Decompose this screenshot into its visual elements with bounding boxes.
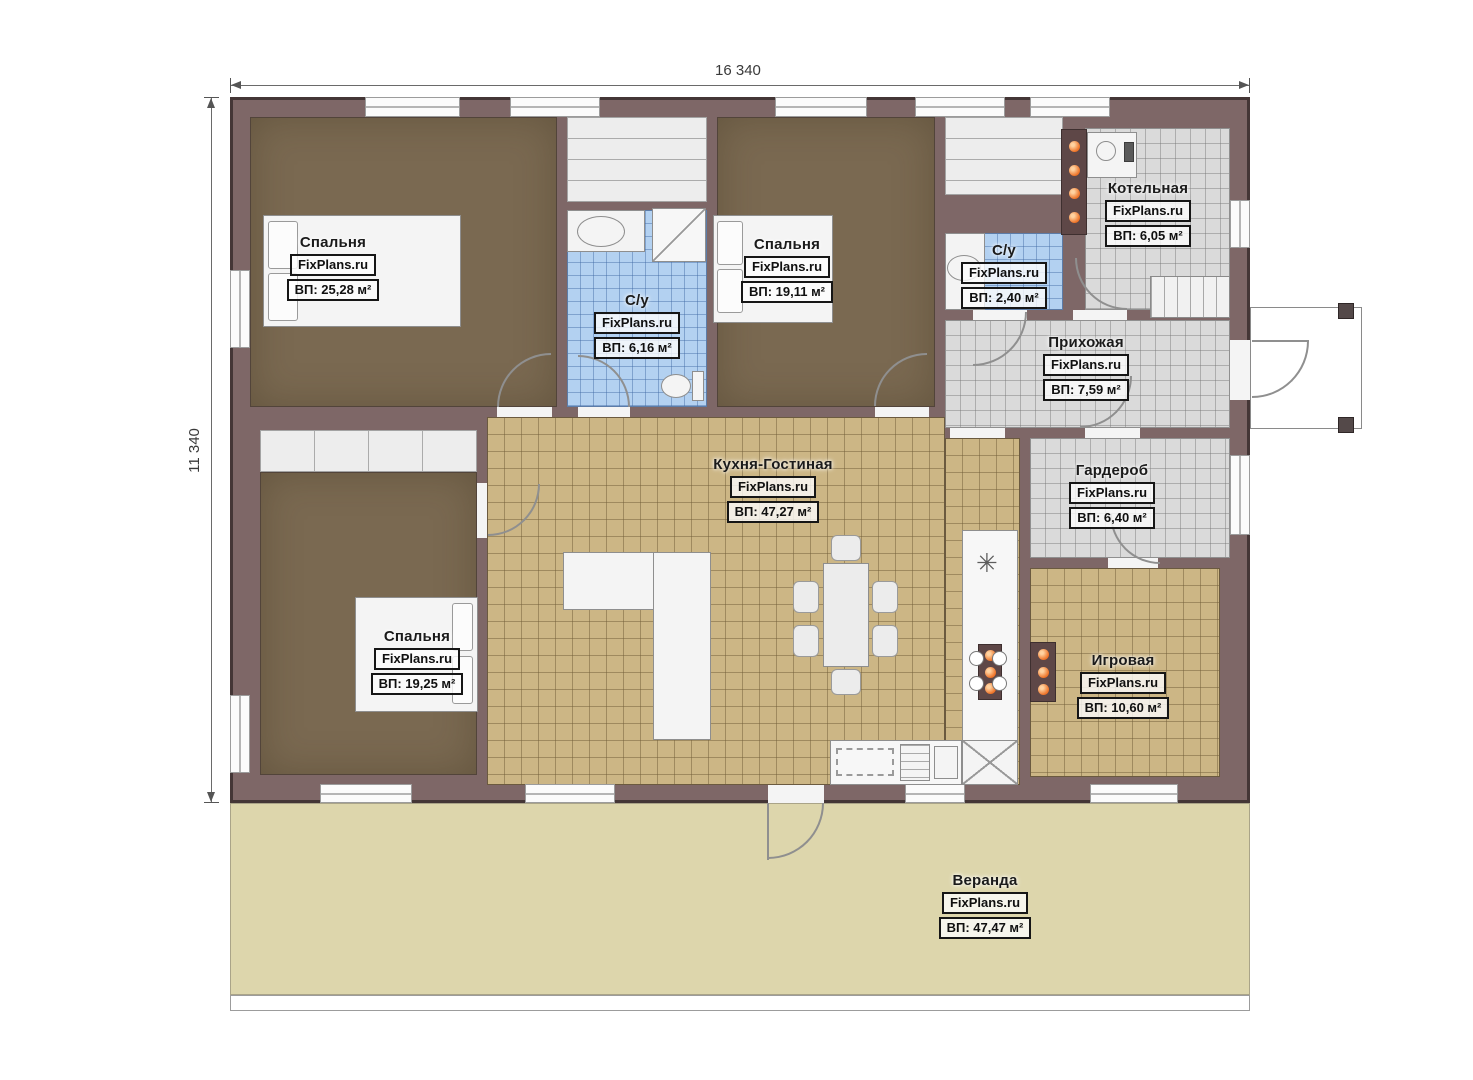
closet-shelves: [260, 430, 477, 472]
vent-icon: ✳: [976, 548, 998, 579]
arrow-down-icon: [207, 792, 215, 802]
door-threshold: [950, 428, 1005, 438]
window: [1030, 97, 1110, 117]
window: [525, 784, 615, 803]
veranda-step: [230, 995, 1250, 1011]
dimension-endbar: [1249, 78, 1250, 93]
radiator: [1030, 642, 1056, 702]
entry-stairs: [1150, 276, 1230, 318]
toilet-tank: [692, 371, 704, 401]
arrow-right-icon: [1239, 81, 1249, 89]
dimension-label-width: 16 340: [715, 62, 761, 79]
window: [320, 784, 412, 803]
chair: [872, 581, 898, 613]
entrance-door-opening: [1230, 340, 1250, 400]
washer-drum-icon: [1096, 141, 1116, 161]
chair: [793, 625, 819, 657]
door-threshold: [1073, 310, 1127, 320]
closet-shelves: [945, 117, 1063, 195]
toilet-icon: [661, 374, 691, 398]
window: [1230, 455, 1250, 535]
chair: [793, 581, 819, 613]
window: [230, 270, 250, 348]
veranda-door-leaf: [767, 803, 769, 860]
window: [1090, 784, 1178, 803]
arrow-left-icon: [231, 81, 241, 89]
pillow: [452, 656, 473, 704]
chair: [831, 535, 861, 561]
door-threshold: [1085, 428, 1140, 438]
door-threshold: [578, 407, 630, 417]
sink-icon: [947, 255, 981, 281]
door-threshold: [477, 483, 487, 538]
window: [365, 97, 460, 117]
dimension-label-height: 11 340: [186, 428, 203, 473]
closet-shelves: [567, 117, 707, 202]
pillow: [717, 221, 743, 265]
radiator: [1061, 129, 1087, 235]
arrow-up-icon: [207, 98, 215, 108]
door-threshold: [497, 407, 552, 417]
dimension-line-left: [211, 97, 212, 803]
window: [915, 97, 1005, 117]
stove-burner: [969, 651, 984, 666]
window: [775, 97, 867, 117]
stove-burner: [992, 651, 1007, 666]
dimension-line-top: [230, 85, 1250, 86]
floor-plan: 16 340 11 340: [0, 0, 1473, 1080]
dishwasher: [900, 744, 930, 781]
stove-burner: [969, 676, 984, 691]
porch-post: [1338, 417, 1354, 433]
window: [510, 97, 600, 117]
veranda-door-opening: [768, 785, 824, 803]
pillow: [268, 273, 298, 321]
door-threshold: [875, 407, 929, 417]
window: [230, 695, 250, 773]
sink-cabinet: [934, 746, 958, 779]
dining-table: [823, 563, 869, 667]
chair: [831, 669, 861, 695]
window: [1230, 200, 1250, 248]
room-playroom-floor: [1030, 568, 1220, 777]
sofa: [653, 552, 711, 740]
counter-dashed-zone: [836, 748, 894, 776]
sink-icon: [577, 216, 625, 247]
boiler-unit: [1124, 142, 1134, 162]
window: [905, 784, 965, 803]
pillow: [717, 269, 743, 313]
entrance-door-leaf: [1252, 340, 1309, 342]
stove-burner: [992, 676, 1007, 691]
porch-post: [1338, 303, 1354, 319]
shower: [652, 208, 706, 262]
chair: [872, 625, 898, 657]
room-veranda-floor: [230, 803, 1250, 995]
pillow: [268, 221, 298, 269]
corner-cabinet: [962, 740, 1018, 785]
dimension-endbar: [204, 802, 219, 803]
pillow: [452, 603, 473, 651]
